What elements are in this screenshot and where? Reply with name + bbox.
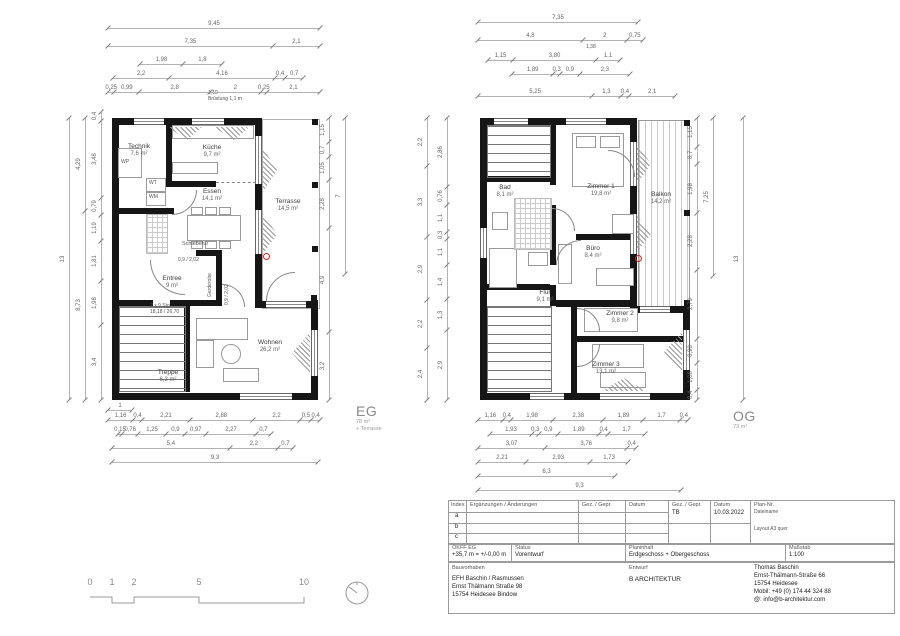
- room-label-kueche: Küche9,7 m²: [203, 144, 221, 160]
- dimension-tick: [444, 397, 450, 403]
- post: [312, 182, 318, 188]
- titleblock-divider: [785, 543, 786, 561]
- dimension-value: 0,3: [552, 67, 560, 73]
- dimension-line: [447, 118, 448, 400]
- scale-tick: 5: [196, 577, 201, 587]
- dimension-value: 0,4: [503, 413, 511, 419]
- architect-city: 15754 Heidesee: [754, 581, 798, 587]
- dimension-chain: 0,150,761,250,90,972,270,7: [118, 428, 271, 438]
- room-label-technik: Technik7,6 m²: [128, 143, 150, 159]
- dimension-value: 2,1: [648, 89, 656, 95]
- dimension-value: 0,9: [566, 67, 574, 73]
- dimension-value: 2,38: [572, 413, 584, 419]
- room-area: 9,1 m²: [536, 297, 553, 305]
- dimension-value: 1,1: [604, 53, 612, 59]
- dimension-chain: 2,23,32,92,22,4: [422, 118, 432, 400]
- dimension-value: 7,35: [552, 15, 564, 21]
- dimension-line: [478, 22, 638, 23]
- dimension-chain: 1,930,30,91,890,41,7: [490, 428, 645, 438]
- dimension-value: 2,2: [418, 320, 424, 328]
- dimension-value: 0,7: [290, 71, 298, 77]
- dimension-chain: 7,352,1: [108, 40, 320, 50]
- date-label: Datum: [629, 502, 645, 508]
- room-label-terrasse: Terrasse14,5 m²: [276, 198, 301, 214]
- room-area: 19,8 m²: [591, 191, 611, 199]
- dimension-value: 5,25: [529, 89, 541, 95]
- dimension-line: [112, 448, 293, 449]
- room-area: 9 m²: [166, 283, 178, 291]
- status-label: Status: [515, 545, 531, 551]
- dimension-chain: 1,890,30,92,3: [512, 68, 630, 78]
- dimension-value: 0,7: [320, 146, 326, 154]
- dimension-value: 1,15: [320, 124, 326, 136]
- scale-label: Maßstab: [789, 545, 810, 551]
- window: [600, 393, 650, 400]
- architect-name: Thomas Baschin: [754, 565, 799, 571]
- dimension-value: 13: [734, 256, 740, 263]
- dimension-value: 1: [118, 403, 121, 409]
- door-size-note-vertical: 0,9 / 2,02: [224, 284, 230, 305]
- dimension-chain: 3,073,760,4: [478, 442, 636, 452]
- heatpump-label: WP: [121, 159, 129, 165]
- dimension-value: 2,88: [215, 413, 227, 419]
- wall: [480, 118, 487, 400]
- window: [240, 393, 292, 400]
- dimension-chain: 5,42,20,7: [112, 442, 293, 452]
- dimension-tick: [642, 431, 648, 437]
- dimension-value: 1,16: [115, 413, 127, 419]
- level-value: +35,7 m = +/-0,00 m: [452, 552, 506, 558]
- date2-value: 10.03.2022: [714, 510, 744, 516]
- dimension-value: 2,1: [289, 85, 297, 91]
- dimension-value: 4,16: [216, 71, 228, 77]
- dimension-value: 0,76: [124, 427, 136, 433]
- titleblock-divider: [448, 533, 668, 534]
- dimension-line: [108, 92, 320, 93]
- dimension-value: 1,81: [92, 255, 98, 267]
- dimension-line: [85, 118, 86, 400]
- room-area: 14,1 m²: [202, 196, 222, 204]
- titleblock-divider: [625, 543, 626, 561]
- dimension-chain: 1,150,71,982,282,790,981,080,4: [692, 118, 702, 400]
- washer-label-wt: WT: [149, 180, 157, 186]
- sliding-door-label: Schiebetür: [182, 241, 208, 248]
- index-label: Index: [451, 502, 464, 508]
- furniture: [219, 207, 231, 215]
- dimension-chain: 13: [738, 118, 748, 400]
- room-name: Küche: [203, 144, 221, 152]
- dimension-tick: [326, 397, 332, 403]
- titleblock-divider: [578, 500, 579, 543]
- wardrobe-label: Garderobe: [207, 273, 213, 297]
- dimension-value: 6,3: [542, 469, 550, 475]
- dimension-value: 0,3: [438, 231, 444, 239]
- window: [494, 118, 528, 125]
- content-label: Planinhalt: [629, 545, 653, 551]
- room-area: 13,1 m²: [596, 369, 616, 377]
- floor-area: 73 m²: [733, 424, 756, 431]
- window: [566, 118, 606, 125]
- room-name: Terrasse: [276, 198, 301, 206]
- post: [312, 246, 318, 252]
- dimension-value: 1,98: [92, 297, 98, 309]
- dimension-value: 8,73: [76, 300, 82, 312]
- stair-rise-note: 18,18 / 26,70: [150, 309, 179, 315]
- outlet-marker: [263, 253, 270, 260]
- window: [480, 228, 487, 258]
- wall: [556, 300, 637, 307]
- dimension-value: 9,3: [575, 483, 583, 489]
- dimension-value: 2,9: [418, 265, 424, 273]
- dimension-tick: [342, 271, 348, 277]
- dimension-value: 0,3: [531, 427, 539, 433]
- dimension-value: 1,3: [438, 310, 444, 318]
- status-value: Vorentwurf: [515, 552, 544, 558]
- design-label: Entwurf: [629, 565, 648, 571]
- architect-email: @: info@b-architektur.com: [754, 597, 825, 603]
- furniture: [196, 318, 248, 340]
- room-name: Zimmer 1: [587, 183, 614, 191]
- room-name: Zimmer 3: [592, 361, 619, 369]
- door-swing-arc: [552, 208, 575, 231]
- furniture: [576, 136, 596, 148]
- dimension-line: [427, 118, 428, 400]
- titleblock-divider: [466, 500, 467, 543]
- floor-note: + Terrasse: [356, 426, 382, 433]
- room-name: Entree: [162, 275, 181, 283]
- post: [312, 119, 318, 125]
- window: [311, 330, 318, 376]
- dimension-chain: 4,298,73: [80, 118, 90, 400]
- dimension-tick: [617, 57, 623, 63]
- titleblock-divider: [668, 500, 669, 543]
- dimension-line: [713, 118, 714, 276]
- room-label-zimmer2: Zimmer 29,8 m²: [606, 310, 633, 326]
- dimension-value: 2,1: [292, 39, 300, 45]
- floor-code: OG: [733, 408, 756, 424]
- coffee-table: [221, 344, 241, 364]
- dimension-line: [101, 112, 102, 400]
- dimension-chain: 2,212,931,73: [478, 456, 628, 466]
- dimension-value: 1,08: [688, 371, 694, 383]
- dimension-tick: [82, 397, 88, 403]
- dimension-value: 0,79: [92, 201, 98, 213]
- dimension-line: [697, 118, 698, 400]
- room-name: Wohnen: [258, 339, 282, 347]
- dimension-value: 1,7: [657, 413, 665, 419]
- dimension-value: 13: [60, 256, 66, 263]
- dimension-value: 1,19: [92, 222, 98, 234]
- room-label-wohnen: Wohnen26,2 m²: [258, 339, 282, 355]
- dimension-value: 0,4: [311, 413, 319, 419]
- window: [192, 118, 224, 125]
- dimension-value: 2,28: [320, 198, 326, 210]
- dimension-value: 2: [234, 85, 237, 91]
- dimension-value: 1,93: [505, 427, 517, 433]
- drawn2-label: Gez. / Gepr.: [672, 502, 702, 508]
- dimension-value: 2,2: [137, 71, 145, 77]
- furniture: [492, 212, 508, 230]
- project-street: Ernst Thälmann Straße 98: [452, 584, 522, 590]
- dimension-value: 2,28: [688, 236, 694, 248]
- dimension-line: [478, 490, 681, 491]
- dimension-value: 7,25: [704, 191, 710, 203]
- furniture: [223, 368, 259, 382]
- furniture: [612, 214, 634, 234]
- dimension-value: 0,7: [259, 427, 267, 433]
- dimension-tick: [290, 445, 296, 451]
- dimension-value: 2,21: [496, 455, 508, 461]
- architect-street: Ernst-Thälmann-Straße 66: [754, 573, 825, 579]
- dimension-value: 2,79: [688, 298, 694, 310]
- dimension-value: 1,98: [526, 413, 538, 419]
- furniture: [172, 162, 218, 174]
- wall: [576, 234, 630, 240]
- room-label-zimmer1: Zimmer 119,8 m²: [587, 183, 614, 199]
- room-name: Essen: [203, 188, 221, 196]
- dimension-line: [478, 476, 615, 477]
- scale-tick: 1: [109, 577, 114, 587]
- dimension-value: 4,9: [320, 276, 326, 284]
- titleblock-divider: [511, 543, 512, 561]
- dimension-tick: [640, 37, 646, 43]
- dimension-value: 1,8: [198, 57, 206, 63]
- furniture: [528, 252, 548, 266]
- scale-tick: 0: [87, 577, 92, 587]
- dimension-chain: 5,251,30,42,1: [478, 90, 675, 100]
- room-name: Technik: [128, 143, 150, 151]
- dimension-tick: [635, 19, 641, 25]
- dimension-value: 0,98: [688, 345, 694, 357]
- tiled-floor: [514, 198, 552, 250]
- room-name: Balkon: [651, 191, 671, 199]
- dimension-value: 0,97: [190, 427, 202, 433]
- project-name: EFH Baschin / Rasmussen: [452, 576, 524, 582]
- dimension-value: 0,76: [438, 190, 444, 202]
- dimension-value: 0,75: [629, 33, 641, 39]
- dimension-line: [743, 118, 744, 400]
- dimension-value: 1,1: [438, 214, 444, 222]
- dimension-value: 2: [603, 33, 606, 39]
- project-label: Bauvorhaben: [452, 565, 485, 571]
- dimension-tick: [317, 25, 323, 31]
- staircase: [487, 125, 551, 178]
- wall: [480, 393, 690, 400]
- dimension-value: 1,89: [573, 427, 585, 433]
- dimension-value: 0,4: [276, 71, 284, 77]
- dimension-value: 0,9: [171, 427, 179, 433]
- changes-label: Ergänzungen / Änderungen: [470, 502, 537, 508]
- dimension-value: 3,07: [506, 441, 518, 447]
- titleblock-divider: [448, 523, 750, 524]
- dimension-value: 1,73: [603, 455, 615, 461]
- dimension-value: 2,93: [552, 455, 564, 461]
- dimension-value: 9,45: [208, 21, 220, 27]
- dimension-value: 3,3: [418, 197, 424, 205]
- dimension-value: 1,05: [320, 163, 326, 175]
- dimension-tick: [672, 93, 678, 99]
- window: [640, 306, 670, 313]
- floor-label-og: OG 73 m²: [733, 408, 756, 431]
- dimension-chain: 6,3: [478, 470, 615, 480]
- plan-number-label: Plan-Nr.: [754, 502, 774, 508]
- dimension-value: 1,3: [602, 89, 610, 95]
- dashed-opening-line: [216, 182, 256, 183]
- dimension-value: 0,4: [688, 391, 694, 399]
- index-row-a: a: [455, 513, 458, 519]
- room-name: Büro: [586, 245, 600, 253]
- dimension-line: [108, 410, 132, 411]
- dimension-line: [118, 434, 271, 435]
- dimension-value: 2,3: [601, 67, 609, 73]
- room-label-buero: Büro8,4 m²: [584, 245, 601, 261]
- dimension-tick: [612, 473, 618, 479]
- floor-code: EG: [356, 403, 382, 419]
- window: [255, 210, 262, 254]
- dimension-value: 7,35: [185, 39, 197, 45]
- dimension-tick: [268, 431, 274, 437]
- wall: [166, 181, 216, 187]
- dimension-chain: 9,3: [112, 456, 318, 466]
- room-label-essen: Essen14,1 m²: [202, 188, 222, 204]
- room-area: 6,3 m²: [159, 377, 176, 385]
- dimension-value: 0,25: [105, 85, 117, 91]
- furniture: [205, 207, 217, 215]
- dimension-value: 1,98: [156, 57, 168, 63]
- north-indicator-icon: [344, 580, 370, 606]
- room-area: 8,1 m²: [496, 192, 513, 200]
- door-size-note: 0,9 / 2,02: [178, 257, 199, 263]
- room-label-balkon: Balkon14,2 m²: [651, 191, 671, 207]
- room-name: Bad: [499, 184, 511, 192]
- dimension-value: 2,9: [438, 361, 444, 369]
- content-value: Erdgeschoss + Obergeschoss: [629, 552, 709, 558]
- dimension-chain: 9,3: [478, 484, 681, 494]
- furniture: [191, 207, 203, 215]
- dimension-tick: [66, 397, 72, 403]
- dimension-value: 2,8: [171, 85, 179, 91]
- room-label-bad: Bad8,1 m²: [496, 184, 513, 200]
- floor-area: 78 m²: [356, 419, 382, 426]
- dimension-tick: [710, 273, 716, 279]
- furniture: [196, 340, 214, 368]
- dimension-value: 2,27: [225, 427, 237, 433]
- room-label-zimmer3: Zimmer 313,1 m²: [592, 361, 619, 377]
- room-area: 14,2 m²: [651, 199, 671, 207]
- titleblock-divider: [710, 500, 711, 543]
- dimension-value: 0,4: [599, 427, 607, 433]
- room-area: 8,4 m²: [584, 253, 601, 261]
- balcony-deck: [638, 120, 690, 308]
- dimension-line: [478, 462, 628, 463]
- dimension-value: 1,89: [527, 67, 539, 73]
- furniture: [596, 268, 634, 286]
- window: [266, 301, 306, 308]
- dimension-value: 4,8: [526, 33, 534, 39]
- level-label: OKFF EG: [452, 545, 476, 551]
- index-row-b: b: [455, 524, 458, 530]
- dimension-tick: [98, 397, 104, 403]
- dimension-line: [112, 462, 318, 463]
- date2-label: Datum: [714, 502, 730, 508]
- dimension-chain: 7: [340, 118, 350, 274]
- dimension-value: 2,2: [250, 441, 258, 447]
- dimension-value: 0,25: [258, 85, 270, 91]
- room-area: 7,6 m²: [130, 151, 147, 159]
- dimension-tick: [678, 487, 684, 493]
- room-label-treppe: Treppe6,3 m²: [158, 369, 178, 385]
- dimension-line: [478, 96, 675, 97]
- index-row-c: c: [455, 534, 458, 540]
- og-dim-note: 1,38: [586, 44, 596, 50]
- dimension-value: 0,4: [621, 89, 629, 95]
- dimension-line: [512, 74, 630, 75]
- room-name: Treppe: [158, 369, 178, 377]
- dimension-tick: [317, 43, 323, 49]
- parapet-note: Brüstung 1,1 m: [208, 96, 242, 102]
- drawn-label: Gez. / Gepr.: [582, 502, 612, 508]
- dimension-chain: 9,45: [108, 22, 320, 32]
- dimension-value: 2,86: [438, 147, 444, 159]
- dimension-tick: [740, 397, 746, 403]
- room-area: 9,7 m²: [203, 152, 220, 160]
- staircase: [487, 306, 552, 392]
- wall: [577, 336, 683, 342]
- dimension-value: 0,5: [302, 413, 310, 419]
- post: [311, 295, 317, 301]
- titleblock-divider: [750, 500, 751, 543]
- dimension-value: 7: [336, 194, 342, 197]
- window: [530, 393, 564, 400]
- room-label-flur: Flur9,1 m²: [536, 289, 553, 305]
- dimension-value: 1,98: [688, 183, 694, 195]
- furniture: [219, 241, 231, 249]
- dimension-line: [478, 40, 643, 41]
- layout-note: Layout A3 quer: [754, 526, 788, 532]
- scale-bar-line: [90, 594, 306, 606]
- dimension-tick: [300, 75, 306, 81]
- scale-tick: 2: [131, 577, 136, 587]
- scale-value: 1:100: [789, 552, 804, 558]
- window: [134, 118, 164, 125]
- dimension-tick: [317, 89, 323, 95]
- outlet-marker: [635, 255, 642, 262]
- post: [684, 210, 690, 216]
- washer-label-wm: WM: [149, 194, 158, 200]
- dimension-line: [108, 28, 320, 29]
- dimension-line: [345, 118, 346, 274]
- window: [255, 136, 262, 184]
- design-firm: B ARCHITEKTUR: [629, 576, 681, 583]
- dimension-value: 2,4: [418, 370, 424, 378]
- dimension-value: 1,15: [688, 126, 694, 138]
- dimension-tick: [424, 397, 430, 403]
- dimension-chain: 7,35: [478, 16, 638, 26]
- dimension-value: 5,4: [167, 441, 175, 447]
- dimension-value: 2,21: [160, 413, 172, 419]
- dimension-value: 0,7: [281, 441, 289, 447]
- floor-label-eg: EG 78 m² + Terrasse: [356, 403, 382, 433]
- room-area: 9,8 m²: [611, 318, 628, 326]
- scale-tick: 10: [299, 577, 309, 587]
- dimension-chain: 1,160,42,212,882,20,50,4: [108, 414, 320, 424]
- dimension-value: 1,1: [438, 248, 444, 256]
- dimension-value: 2,2: [418, 138, 424, 146]
- dimension-chain: 7,25: [708, 118, 718, 276]
- dimension-tick: [694, 397, 700, 403]
- plan-number-value: Dateiname: [754, 509, 778, 515]
- dimension-value: 1,7: [622, 427, 630, 433]
